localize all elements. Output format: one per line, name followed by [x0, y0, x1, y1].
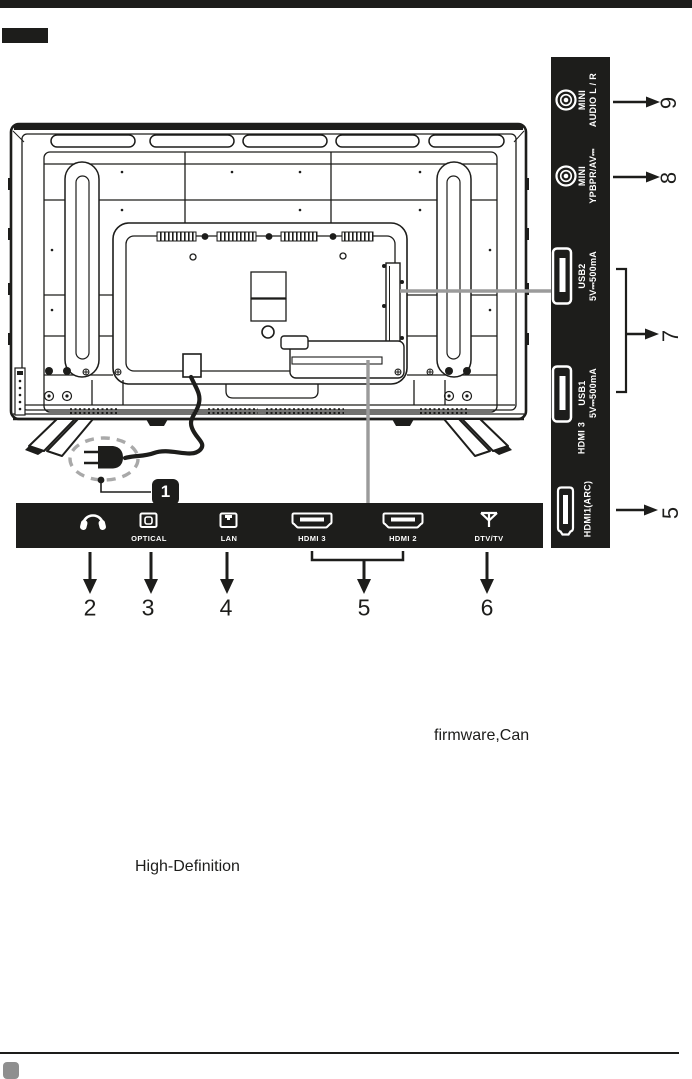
usb2-port-icon [551, 247, 575, 305]
optical-icon [138, 508, 160, 532]
lan-label: LAN [221, 534, 238, 543]
callout-number-5-right: 5 [660, 507, 682, 519]
page-number-block [3, 1062, 19, 1079]
dtv-tv-label: DTV/TV [474, 534, 503, 543]
power-plug [84, 446, 123, 469]
hdmi-icon [381, 508, 425, 532]
hdmi-icon [290, 508, 334, 532]
bracket-7 [616, 269, 626, 392]
callout-number-5-bottom: 5 [358, 597, 371, 620]
hdmi3-label: HDMI 3 [298, 534, 326, 543]
mini-ypbpr-label: MINI YPBPR/AV⎓ [577, 148, 600, 203]
text-fragment-firmware: firmware,Can [434, 727, 529, 745]
mini-audio-label: MINI AUDIO L / R [577, 73, 600, 127]
side-connector-panel: MINI AUDIO L / R MINI YPBPR/AV⎓ USB2 5V⎓… [551, 57, 610, 548]
lan-port: LAN [189, 508, 269, 543]
usb1-label: USB1 5V⎓500mA [577, 368, 600, 418]
callout-number-2: 2 [84, 597, 97, 620]
callout-arrows-bottom [83, 551, 494, 594]
usb1-port-icon [551, 365, 575, 423]
manual-page: MINI AUDIO L / R MINI YPBPR/AV⎓ USB2 5V⎓… [0, 0, 692, 1079]
plug-highlight-ellipse [70, 438, 138, 480]
hdmi2-label: HDMI 2 [389, 534, 417, 543]
callout-arrows-right [613, 97, 660, 516]
dtv-tv-port: DTV/TV [449, 508, 529, 543]
lan-icon [218, 508, 240, 532]
hdmi3-side-label: HDMI 3 [576, 422, 587, 454]
optical-label: OPTICAL [131, 534, 167, 543]
section-tab-marker [2, 28, 48, 43]
callout-number-3: 3 [142, 597, 155, 620]
callout-number-8: 8 [658, 172, 680, 184]
optical-port: OPTICAL [109, 508, 189, 543]
callout-number-4: 4 [220, 597, 233, 620]
hdmi1-arc-port-icon [554, 486, 580, 538]
hdmi1-arc-label: HDMI1(ARC) [582, 481, 593, 538]
bottom-connector-panel: OPTICAL LAN HDMI 3 [16, 503, 543, 548]
text-fragment-high-definition: High-Definition [135, 858, 240, 876]
hdmi3-port: HDMI 3 [272, 508, 352, 543]
top-rule-bar [0, 0, 692, 8]
hdmi2-port: HDMI 2 [363, 508, 443, 543]
power-cord [125, 377, 202, 458]
headphone-icon [78, 508, 108, 532]
tv-outline [8, 124, 529, 456]
callout-number-9: 9 [658, 97, 680, 109]
footer-rule [0, 1052, 679, 1054]
bracket-5 [312, 551, 403, 560]
usb2-label: USB2 5V⎓500mA [577, 251, 600, 301]
antenna-icon [477, 508, 501, 532]
callout-1-line [98, 477, 151, 492]
callout-number-6: 6 [481, 597, 494, 620]
callout-badge-1: 1 [152, 479, 179, 505]
callout-number-7: 7 [660, 330, 682, 342]
annotation-lines [368, 291, 551, 503]
